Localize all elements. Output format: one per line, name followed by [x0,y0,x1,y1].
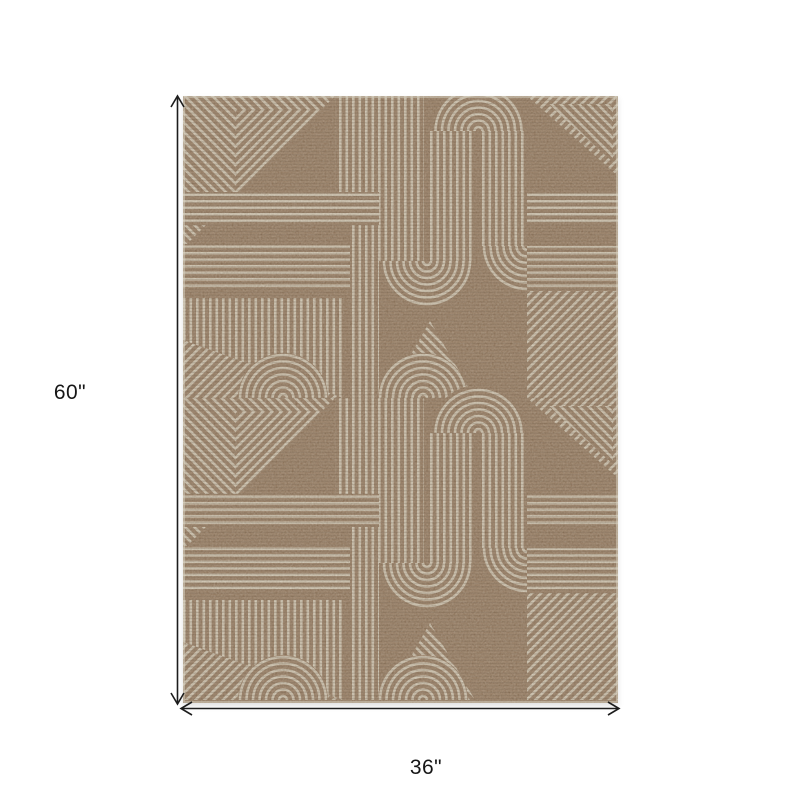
width-dimension-arrow [174,699,626,719]
width-dimension-label: 36" [381,755,471,781]
rug-image [183,96,618,703]
height-dimension-arrow [168,90,188,710]
height-dimension-label: 60" [25,380,115,406]
product-dimension-diagram: 60" 36" [0,0,800,800]
